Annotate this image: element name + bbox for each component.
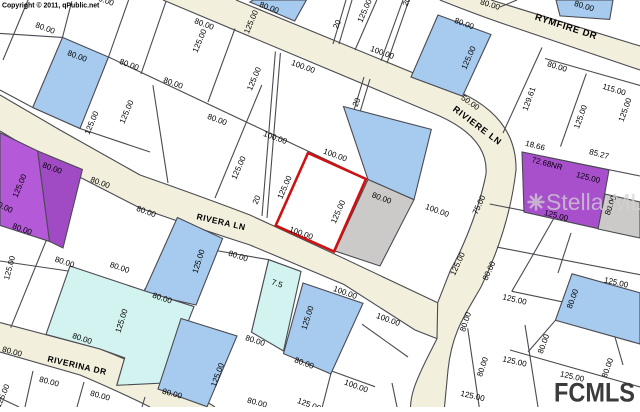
svg-text:StellarMLS: StellarMLS xyxy=(546,189,640,215)
svg-text:Copyright © 2011, qPublic.net: Copyright © 2011, qPublic.net xyxy=(2,2,100,10)
svg-text:FCMLS: FCMLS xyxy=(554,378,635,408)
